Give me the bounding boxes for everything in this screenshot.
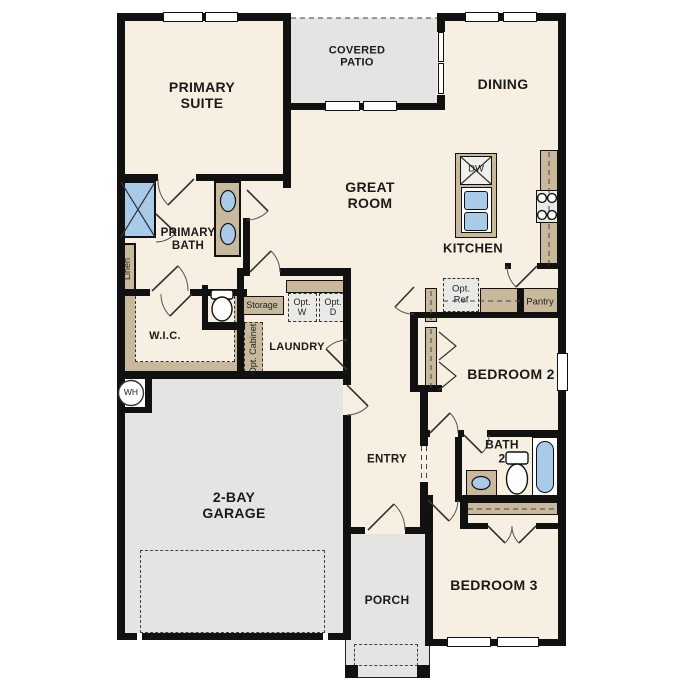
label-pantry: Pantry — [526, 298, 553, 309]
label-dishwasher: DW — [468, 165, 484, 176]
wall-segment — [537, 263, 566, 269]
wall-segment — [437, 13, 566, 21]
wall-segment — [343, 379, 351, 385]
room-label-porch: PORCH — [365, 594, 410, 608]
bath2-vanity — [466, 470, 497, 497]
label-linen: Linen — [122, 258, 132, 280]
window — [497, 637, 539, 647]
room-label-primary-bath: PRIMARY BATH — [161, 227, 216, 253]
label-storage: Storage — [246, 300, 278, 310]
wall-segment — [455, 495, 566, 502]
wall-segment — [487, 430, 566, 437]
porch-area — [351, 534, 425, 640]
primary-vanity — [214, 181, 241, 257]
wall-segment — [420, 430, 430, 437]
exterior-patch — [291, 13, 437, 18]
wall-segment — [437, 21, 445, 32]
wall-segment — [458, 430, 464, 437]
wall-segment — [117, 289, 150, 296]
wall-segment — [117, 13, 291, 21]
window — [163, 12, 203, 22]
wall-segment — [420, 390, 428, 446]
window — [503, 12, 537, 22]
room-label-entry: ENTRY — [367, 454, 407, 467]
wall-segment — [117, 371, 351, 379]
stove — [536, 190, 558, 223]
wall-segment — [237, 268, 250, 276]
label-opt-cabinet: Opt. Cabinet — [248, 324, 258, 375]
garage-door-outline — [140, 550, 325, 633]
wall-segment — [280, 268, 351, 276]
wall-segment — [536, 523, 566, 529]
patio-door-panel — [438, 32, 444, 62]
floor-plan: PRIMARY SUITE COVERED PATIO DINING GREAT… — [0, 0, 687, 687]
window — [325, 101, 360, 111]
room-label-bedroom3: BEDROOM 3 — [450, 578, 538, 594]
wall-segment — [425, 495, 433, 646]
wall-segment — [410, 312, 566, 318]
garage-door-jamb — [323, 633, 328, 640]
bathtub — [536, 441, 554, 493]
wall-segment — [455, 437, 462, 495]
sink-basin — [464, 191, 488, 210]
wall-segment — [190, 289, 247, 296]
wall-segment — [117, 174, 158, 181]
wall-segment — [117, 633, 351, 640]
label-opt-dryer: Opt. D — [324, 297, 341, 317]
wall-segment — [437, 95, 445, 110]
porch-post — [345, 665, 358, 678]
kitchen-counter-low — [480, 288, 518, 313]
room-label-bedroom2: BEDROOM 2 — [467, 367, 555, 383]
wall-segment — [343, 527, 365, 534]
room-label-covered-patio: COVERED PATIO — [329, 45, 386, 70]
garage-door-jamb — [137, 633, 142, 640]
exterior-patch — [117, 640, 345, 687]
sink-basin — [464, 212, 488, 231]
room-label-primary-suite: PRIMARY SUITE — [169, 80, 235, 112]
room-label-garage: 2-BAY GARAGE — [202, 490, 265, 522]
window — [205, 12, 238, 22]
laundry-counter — [286, 280, 348, 293]
room-label-kitchen: KITCHEN — [443, 242, 503, 257]
porch-dashed-outline — [354, 644, 418, 666]
wall-segment — [117, 407, 152, 413]
window — [557, 353, 568, 391]
porch-post — [417, 665, 430, 678]
wall-segment — [518, 288, 523, 313]
room-label-dining: DINING — [478, 77, 529, 93]
wall-segment — [117, 13, 125, 640]
window — [447, 637, 491, 647]
wall-segment — [460, 502, 468, 529]
room-label-bath2: BATH 2 — [485, 438, 519, 465]
wall-segment — [196, 174, 291, 181]
wall-segment — [410, 318, 418, 392]
label-opt-ref: Opt. Ref — [452, 284, 470, 305]
window — [465, 12, 499, 22]
bedroom2-closet-shelf — [425, 327, 437, 390]
label-opt-washer: Opt. W — [293, 297, 310, 317]
room-label-wic: W.I.C. — [149, 330, 181, 342]
wall-segment — [505, 263, 511, 269]
wall-segment — [283, 13, 291, 188]
patio-door-panel — [438, 63, 444, 94]
label-water-heater: WH — [124, 388, 138, 398]
window — [363, 101, 397, 111]
wall-segment — [558, 13, 566, 646]
wall-segment — [202, 322, 245, 330]
room-label-laundry: LAUNDRY — [269, 341, 324, 353]
wall-segment — [343, 268, 351, 379]
room-label-great-room: GREAT ROOM — [345, 180, 394, 212]
exterior-patch — [425, 646, 566, 687]
bedroom3-closet-shelf — [466, 502, 558, 515]
shower — [120, 181, 156, 238]
